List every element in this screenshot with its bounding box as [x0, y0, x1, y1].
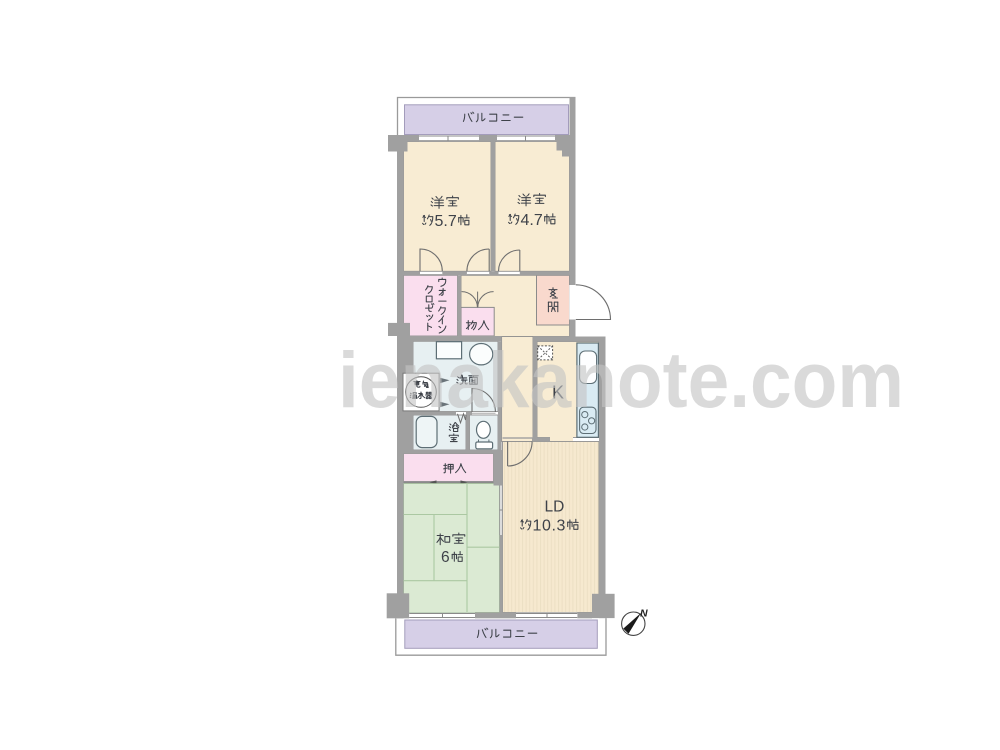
svg-text:LD: LD — [545, 499, 565, 516]
svg-text:6: 6 — [441, 549, 450, 566]
svg-text:10.3: 10.3 — [533, 518, 567, 535]
svg-text:4.7: 4.7 — [521, 212, 543, 229]
svg-text:N: N — [640, 608, 648, 620]
svg-text:5.7: 5.7 — [435, 213, 457, 230]
svg-text:ienakanote.com: ienakanote.com — [338, 335, 904, 424]
